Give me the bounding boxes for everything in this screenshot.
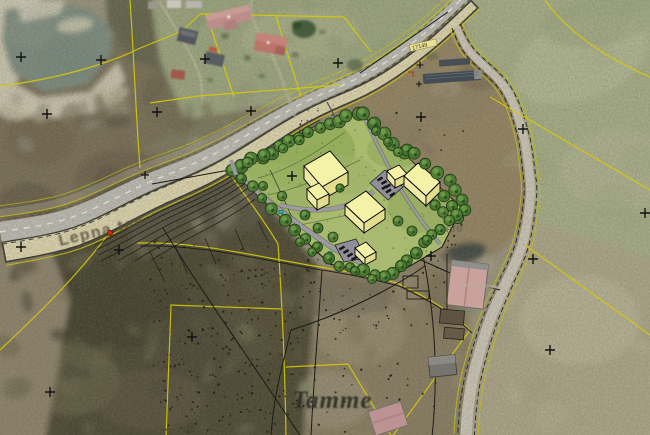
svg-text:ere: ere xyxy=(445,220,464,236)
svg-text:Tamme: Tamme xyxy=(292,387,372,414)
